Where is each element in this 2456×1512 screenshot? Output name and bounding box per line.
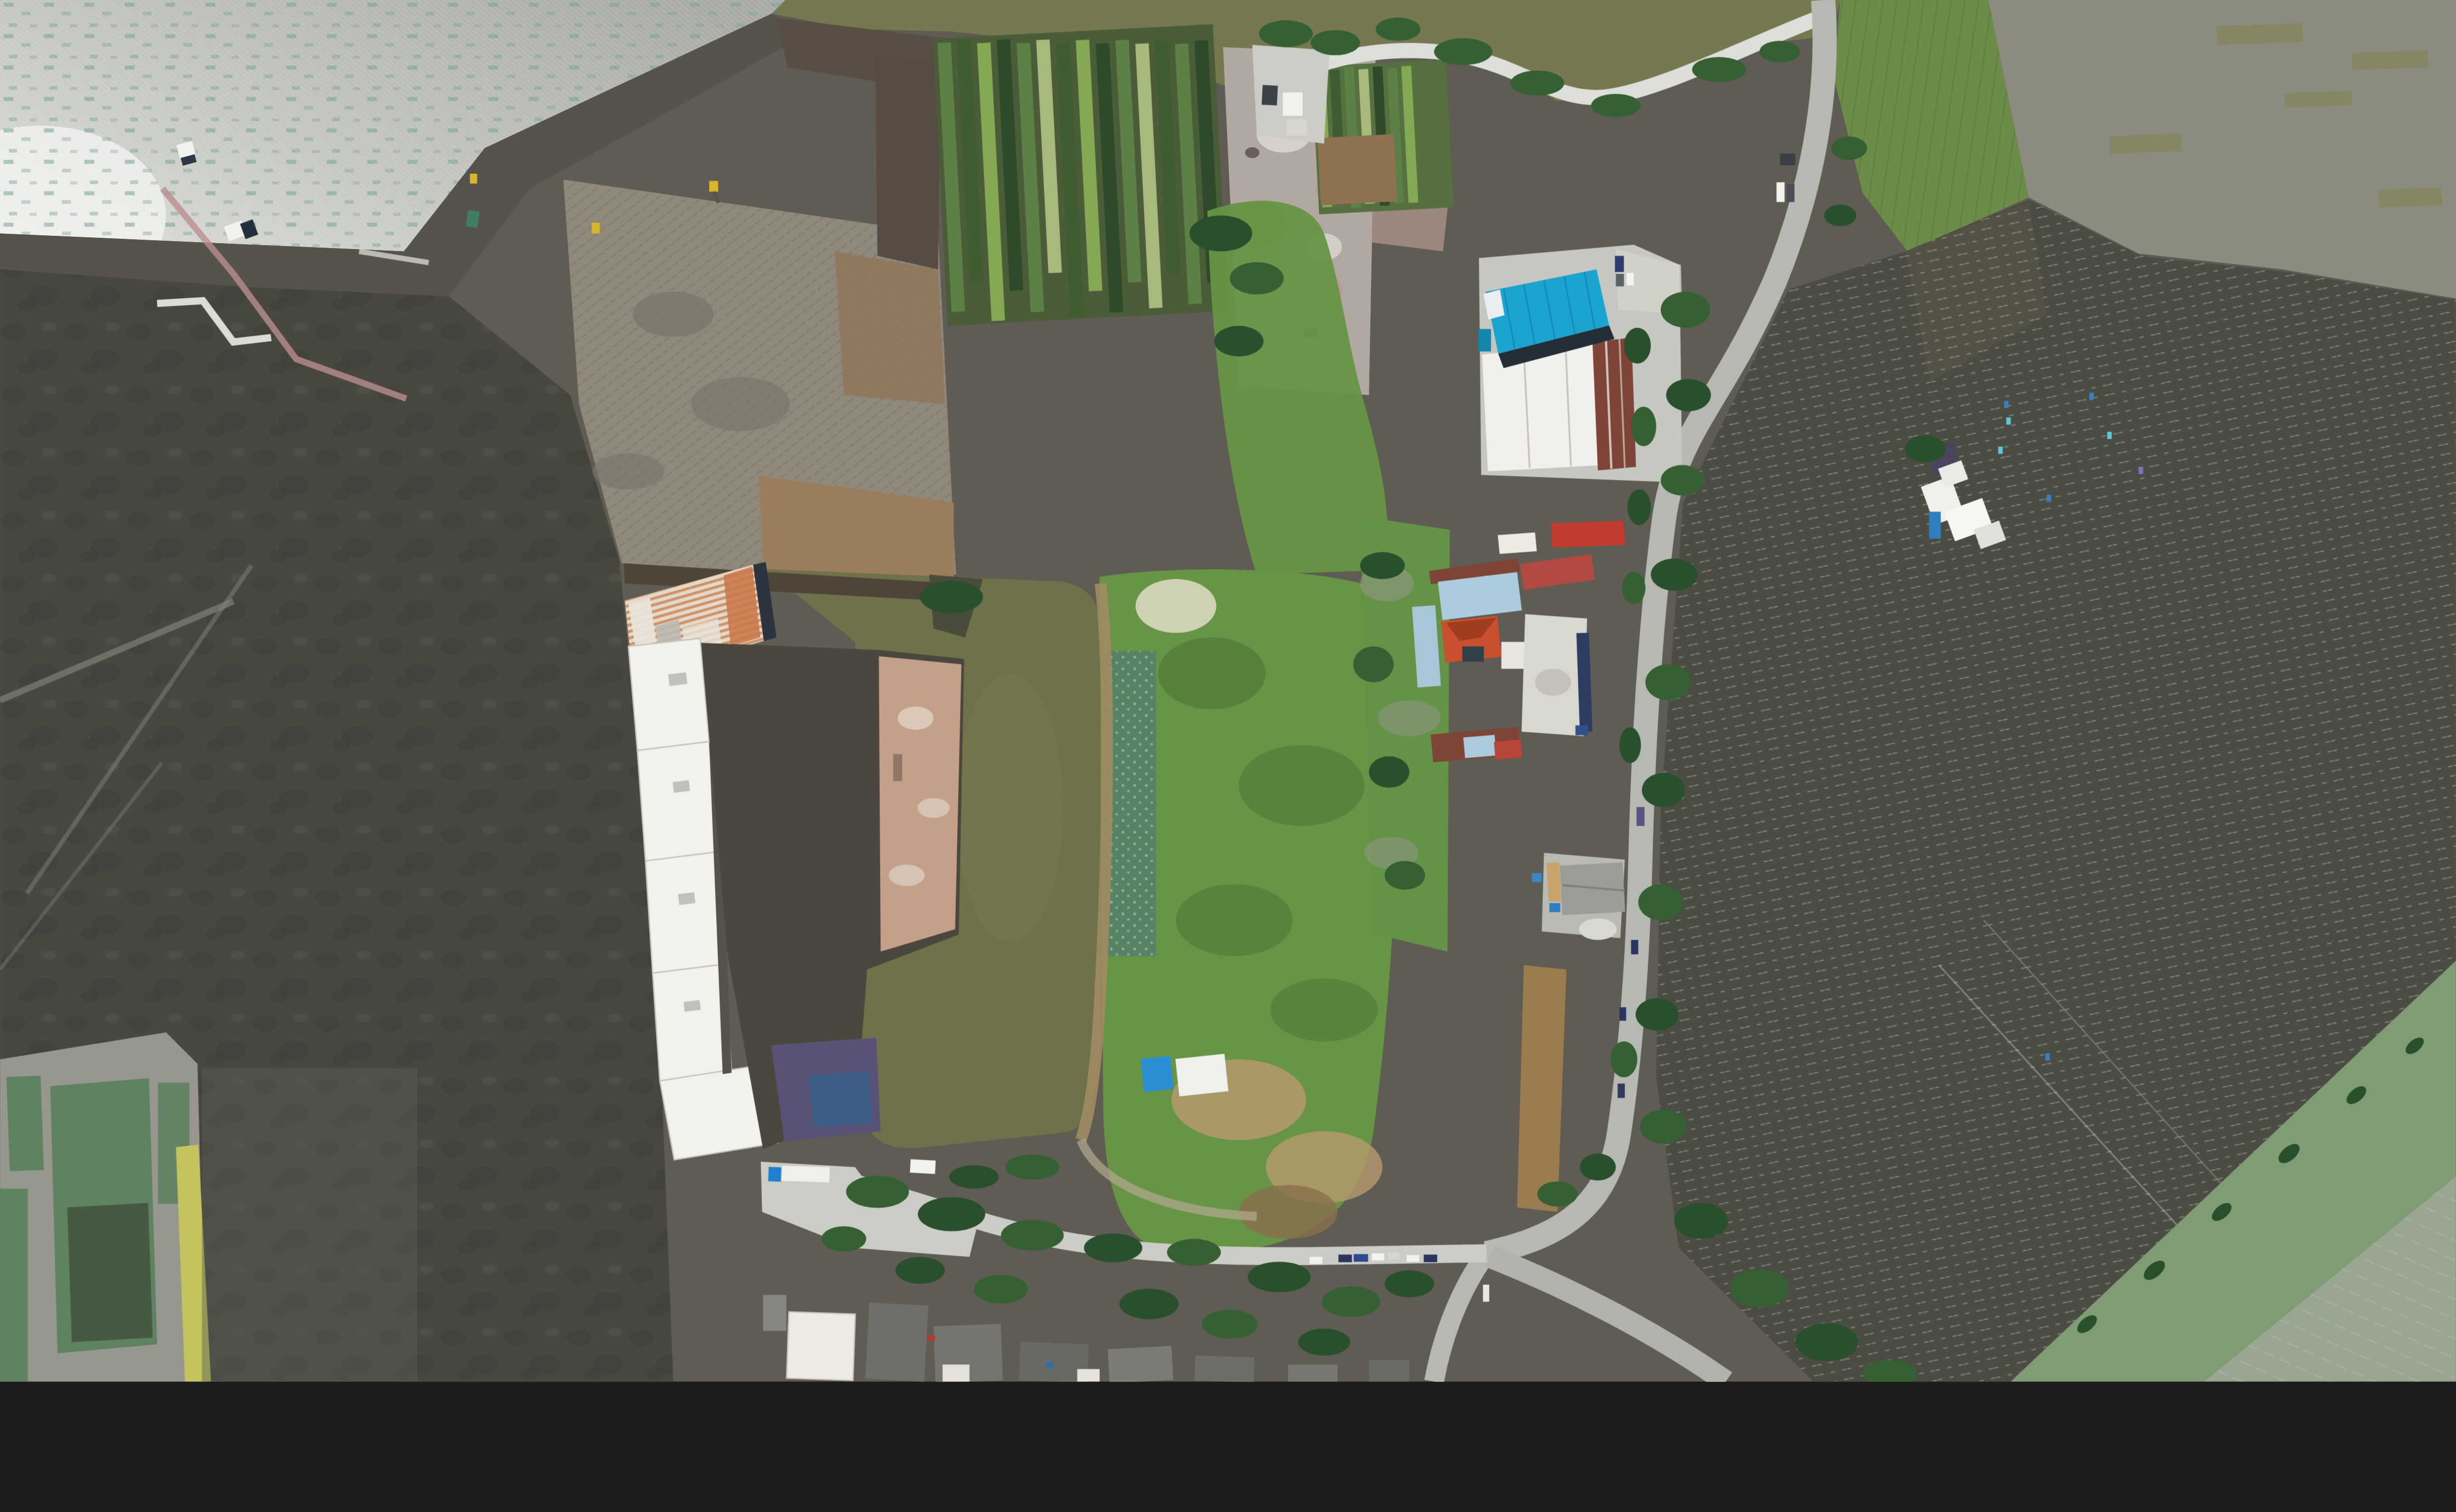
brown-plot (1317, 134, 1397, 205)
ground-mottle (889, 865, 924, 886)
tree (1624, 328, 1651, 364)
field-marker (2089, 393, 2093, 400)
house-roof (1195, 1355, 1255, 1381)
tree (1259, 20, 1313, 47)
pale-blue-patch (1463, 735, 1496, 758)
tree (1611, 1041, 1638, 1077)
tree (1638, 884, 1683, 920)
aerial-photo-canvas: Aerial drone photo of lakeside farmland,… (0, 0, 2456, 1382)
aerial-photo: Aerial drone photo of lakeside farmland,… (0, 0, 2456, 1382)
field-marker (2107, 432, 2112, 439)
right-crop-strips (1312, 59, 1454, 214)
white-house-roof (786, 1312, 855, 1380)
tree (1905, 435, 1946, 462)
excavator (470, 174, 477, 184)
car (1618, 1084, 1625, 1098)
fish-pond-dark (67, 1203, 153, 1342)
field-marker (1998, 447, 2003, 454)
tree (1824, 205, 1856, 226)
ground-mark (893, 754, 902, 781)
house-roof (1288, 1365, 1338, 1382)
tree (1084, 1233, 1143, 1262)
gray-mottle (1378, 700, 1441, 736)
tree (918, 1197, 985, 1231)
parked-car (1407, 1255, 1420, 1262)
dark-green-blob (1270, 979, 1378, 1041)
truck-cab (768, 1167, 781, 1181)
tree (1692, 57, 1746, 82)
gray-shed-roof (1560, 863, 1625, 915)
field-marker (2006, 418, 2010, 425)
tree (1661, 465, 1704, 496)
parked-car (1423, 1255, 1437, 1262)
dry-patch (1136, 579, 1216, 633)
white-roof-small (1498, 532, 1536, 554)
car (1787, 184, 1795, 202)
tree (1353, 646, 1394, 682)
tree (1622, 572, 1646, 604)
house-roof (1369, 1360, 1409, 1382)
parked-car (1354, 1254, 1368, 1262)
parked-car (1371, 1253, 1384, 1260)
tree (1591, 94, 1641, 117)
tree (1537, 1181, 1578, 1206)
gray-green-field (202, 1068, 418, 1382)
blue-roof-shed (1141, 1056, 1173, 1092)
pump-pond (466, 210, 479, 228)
gray-blob (691, 377, 790, 431)
tree (1214, 326, 1264, 356)
truck-white (1283, 92, 1302, 116)
white-van (910, 1159, 936, 1174)
tree (1311, 30, 1360, 55)
field-marker (2045, 1054, 2050, 1061)
ground-mottle (918, 798, 950, 818)
tree (1434, 38, 1492, 65)
tree (1385, 1270, 1434, 1297)
field-marker (2047, 495, 2051, 502)
tree (1510, 70, 1564, 95)
car (1619, 1007, 1626, 1020)
tree (1189, 216, 1252, 252)
tree (1661, 292, 1710, 328)
truck-box (1286, 119, 1307, 136)
tree (1202, 1310, 1257, 1338)
tree (846, 1176, 909, 1208)
white-roof-panel (638, 742, 718, 861)
white-post (1483, 1285, 1489, 1302)
car (1626, 273, 1634, 286)
tree (895, 1257, 945, 1284)
white-roof-bit (1077, 1369, 1100, 1382)
tree (1619, 727, 1641, 763)
truck-trailer (781, 1166, 830, 1182)
parked-car (1324, 1256, 1337, 1263)
debris-pile (1579, 919, 1617, 940)
gray-blob (592, 453, 664, 489)
white-shed (1175, 1054, 1228, 1096)
white-roof-panel (628, 638, 709, 750)
dirt-patch (835, 252, 945, 404)
parked-car (1310, 1257, 1322, 1264)
house-roof (763, 1295, 786, 1331)
car (1637, 807, 1645, 826)
tree (1674, 1203, 1728, 1239)
white-roof-panel (645, 852, 725, 973)
tree (1119, 1288, 1179, 1319)
parked-car (1388, 1253, 1399, 1260)
ground-mottle (897, 706, 933, 730)
tree (949, 1165, 999, 1189)
cyan-shed (1479, 329, 1491, 352)
car (1615, 256, 1624, 272)
court-mottle (1535, 669, 1571, 696)
dark-green-blob (1176, 884, 1293, 956)
vegetable-crop-strips: Vegetable crop strips (933, 24, 1228, 326)
courtyard-blue-patch (808, 1071, 873, 1127)
pond-reflection (956, 673, 1063, 943)
dark-green-blob (1239, 745, 1365, 826)
fish-pond (6, 1076, 44, 1171)
field-marker (2004, 401, 2009, 408)
fish-pond (0, 1189, 28, 1382)
blue-detail (1046, 1362, 1053, 1368)
tree (920, 581, 983, 613)
dumpster (1780, 154, 1795, 166)
tree (1636, 998, 1679, 1031)
tree (1376, 18, 1421, 41)
truck-dark (1261, 85, 1278, 106)
tree (1795, 1323, 1858, 1361)
gray-blob (633, 292, 713, 336)
excavator (591, 223, 599, 233)
red-roof-building (1551, 521, 1625, 548)
blue-panel (1929, 512, 1941, 539)
house-shadow-court (1462, 646, 1484, 662)
tree (1385, 861, 1425, 890)
tree (1248, 1262, 1311, 1292)
field-marker (2139, 467, 2143, 474)
blue-vehicle (1575, 726, 1588, 735)
parked-car (1339, 1255, 1352, 1262)
tree (1627, 489, 1651, 525)
red-detail (927, 1335, 935, 1341)
tree (974, 1275, 1028, 1303)
car (1777, 182, 1785, 202)
house-roof (1108, 1346, 1173, 1382)
tan-building (1547, 863, 1562, 902)
tree (1666, 379, 1711, 411)
tree (1369, 756, 1409, 788)
tree (821, 1226, 866, 1251)
tree (1322, 1287, 1380, 1317)
tree (1580, 1153, 1616, 1180)
tree (1831, 137, 1867, 160)
tree (1651, 559, 1698, 591)
flatbed-truck (768, 1165, 830, 1183)
tree (1298, 1329, 1350, 1356)
tree (1167, 1239, 1221, 1266)
tree (1730, 1269, 1788, 1307)
tree (1640, 1110, 1687, 1144)
tree (1005, 1154, 1060, 1179)
tree (1001, 1220, 1064, 1251)
tree (1230, 262, 1284, 295)
tree (1646, 664, 1690, 700)
dark-field (875, 54, 940, 270)
car (1631, 940, 1639, 954)
blue-tarp-small (1532, 873, 1542, 882)
tree (1759, 41, 1800, 62)
red-patch-roof (1494, 739, 1522, 759)
dark-green-blob (1158, 638, 1265, 709)
car (1616, 274, 1623, 286)
blue-tarp (1549, 903, 1560, 912)
white-roof-bit (943, 1365, 970, 1382)
house-roof (865, 1302, 928, 1381)
tree (1360, 552, 1405, 579)
tree (1642, 773, 1685, 807)
cabbage-dots (1106, 651, 1156, 956)
tree (1631, 407, 1656, 446)
